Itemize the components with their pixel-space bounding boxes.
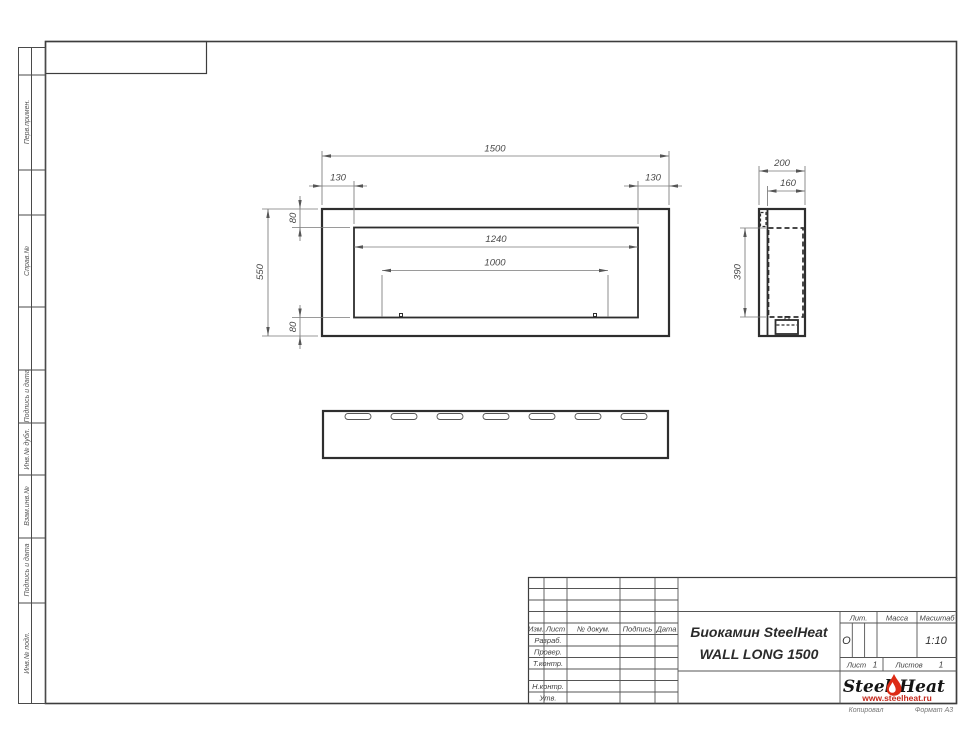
vent-slot (437, 414, 463, 420)
vent-slot (345, 414, 371, 420)
sidebar-label-vzam-inv: Взам.инв.№ (24, 486, 31, 526)
dim-front-opening-width: 1240 (485, 234, 507, 245)
sheets-label: Листов (894, 661, 922, 670)
row-utv: Утв. (538, 694, 556, 703)
lit-value: О (842, 635, 851, 647)
vent-slot (483, 414, 509, 420)
side-firebox-hidden (769, 228, 804, 317)
dim-front-burner-width: 1000 (484, 258, 506, 269)
title-block: Изм. Лист № докум. Подпись Дата Разраб. … (528, 578, 957, 715)
sidebar-label-podpis-data-1: Подпись и дата (23, 369, 31, 422)
row-nkontr: Н.контр. (532, 682, 564, 691)
dim-front-height: 550 (255, 263, 266, 280)
format-label: Формат А3 (915, 707, 953, 714)
sidebar-label-inv-podl: Инв.№ подл. (23, 632, 31, 674)
dim-front-offset-right: 130 (645, 173, 662, 184)
burner-mark-right (594, 314, 597, 317)
sidebar-label-sprav-no: Справ.№ (24, 246, 31, 276)
dim-front-total-width: 1500 (484, 144, 506, 155)
doc-number-stamp (46, 42, 207, 74)
sidebar: Перв.примен. Справ.№ Подпись и дата Инв.… (19, 48, 46, 704)
steelheat-logo: Steel Heat www.steelheat.ru (843, 674, 945, 703)
dim-front-offset-top: 80 (288, 212, 299, 223)
front-view (322, 209, 669, 336)
sheet-frame (46, 42, 957, 704)
vent-slot (529, 414, 555, 420)
sheet-value: 1 (873, 660, 878, 670)
drawing-sheet: Перв.примен. Справ.№ Подпись и дата Инв.… (0, 0, 970, 749)
bottom-view (323, 411, 668, 458)
drawing-canvas: Перв.примен. Справ.№ Подпись и дата Инв.… (0, 0, 970, 749)
dim-side-inner-depth: 160 (780, 178, 797, 189)
col-list: Лист (545, 625, 565, 634)
col-podpis: Подпись (623, 625, 653, 634)
burner-mark-left (400, 314, 403, 317)
copied-label: Копировал (849, 707, 884, 714)
mass-header: Масса (886, 614, 908, 623)
sidebar-label-perv-primen: Перв.примен. (24, 100, 31, 145)
vent-slot (621, 414, 647, 420)
vent-slot (391, 414, 417, 420)
sidebar-label-podpis-data-2: Подпись и дата (23, 543, 31, 596)
doc-title-line1: Биокамин SteelHeat (690, 624, 828, 640)
scale-value: 1:10 (925, 635, 947, 647)
logo-url: www.steelheat.ru (861, 693, 932, 703)
row-prover: Провер. (534, 648, 562, 657)
row-razrab: Разраб. (534, 636, 561, 645)
lit-header: Лит. (849, 614, 868, 623)
dim-side-inner-height: 390 (733, 263, 744, 280)
side-bracket-hidden (761, 213, 767, 227)
sheets-value: 1 (939, 660, 944, 670)
dim-front-offset-left: 130 (330, 173, 347, 184)
dim-side-depth: 200 (773, 158, 791, 169)
drawing-border (46, 42, 957, 704)
side-view-dimensions: 200 160 390 (733, 158, 806, 317)
bottom-outer-contour (323, 411, 668, 458)
row-tkontr: Т.контр. (533, 659, 563, 668)
vent-slot (575, 414, 601, 420)
col-izm: Изм. (528, 625, 544, 634)
sheet-label: Лист (846, 661, 866, 670)
sidebar-label-inv-dubl: Инв.№ дубл. (23, 428, 31, 469)
col-dokum: № докум. (577, 625, 610, 634)
dim-front-offset-bottom: 80 (288, 321, 299, 332)
col-data: Дата (656, 625, 677, 634)
side-burner-box (776, 320, 799, 334)
doc-title-line2: WALL LONG 1500 (700, 646, 819, 662)
scale-header: Масштаб (919, 614, 955, 623)
